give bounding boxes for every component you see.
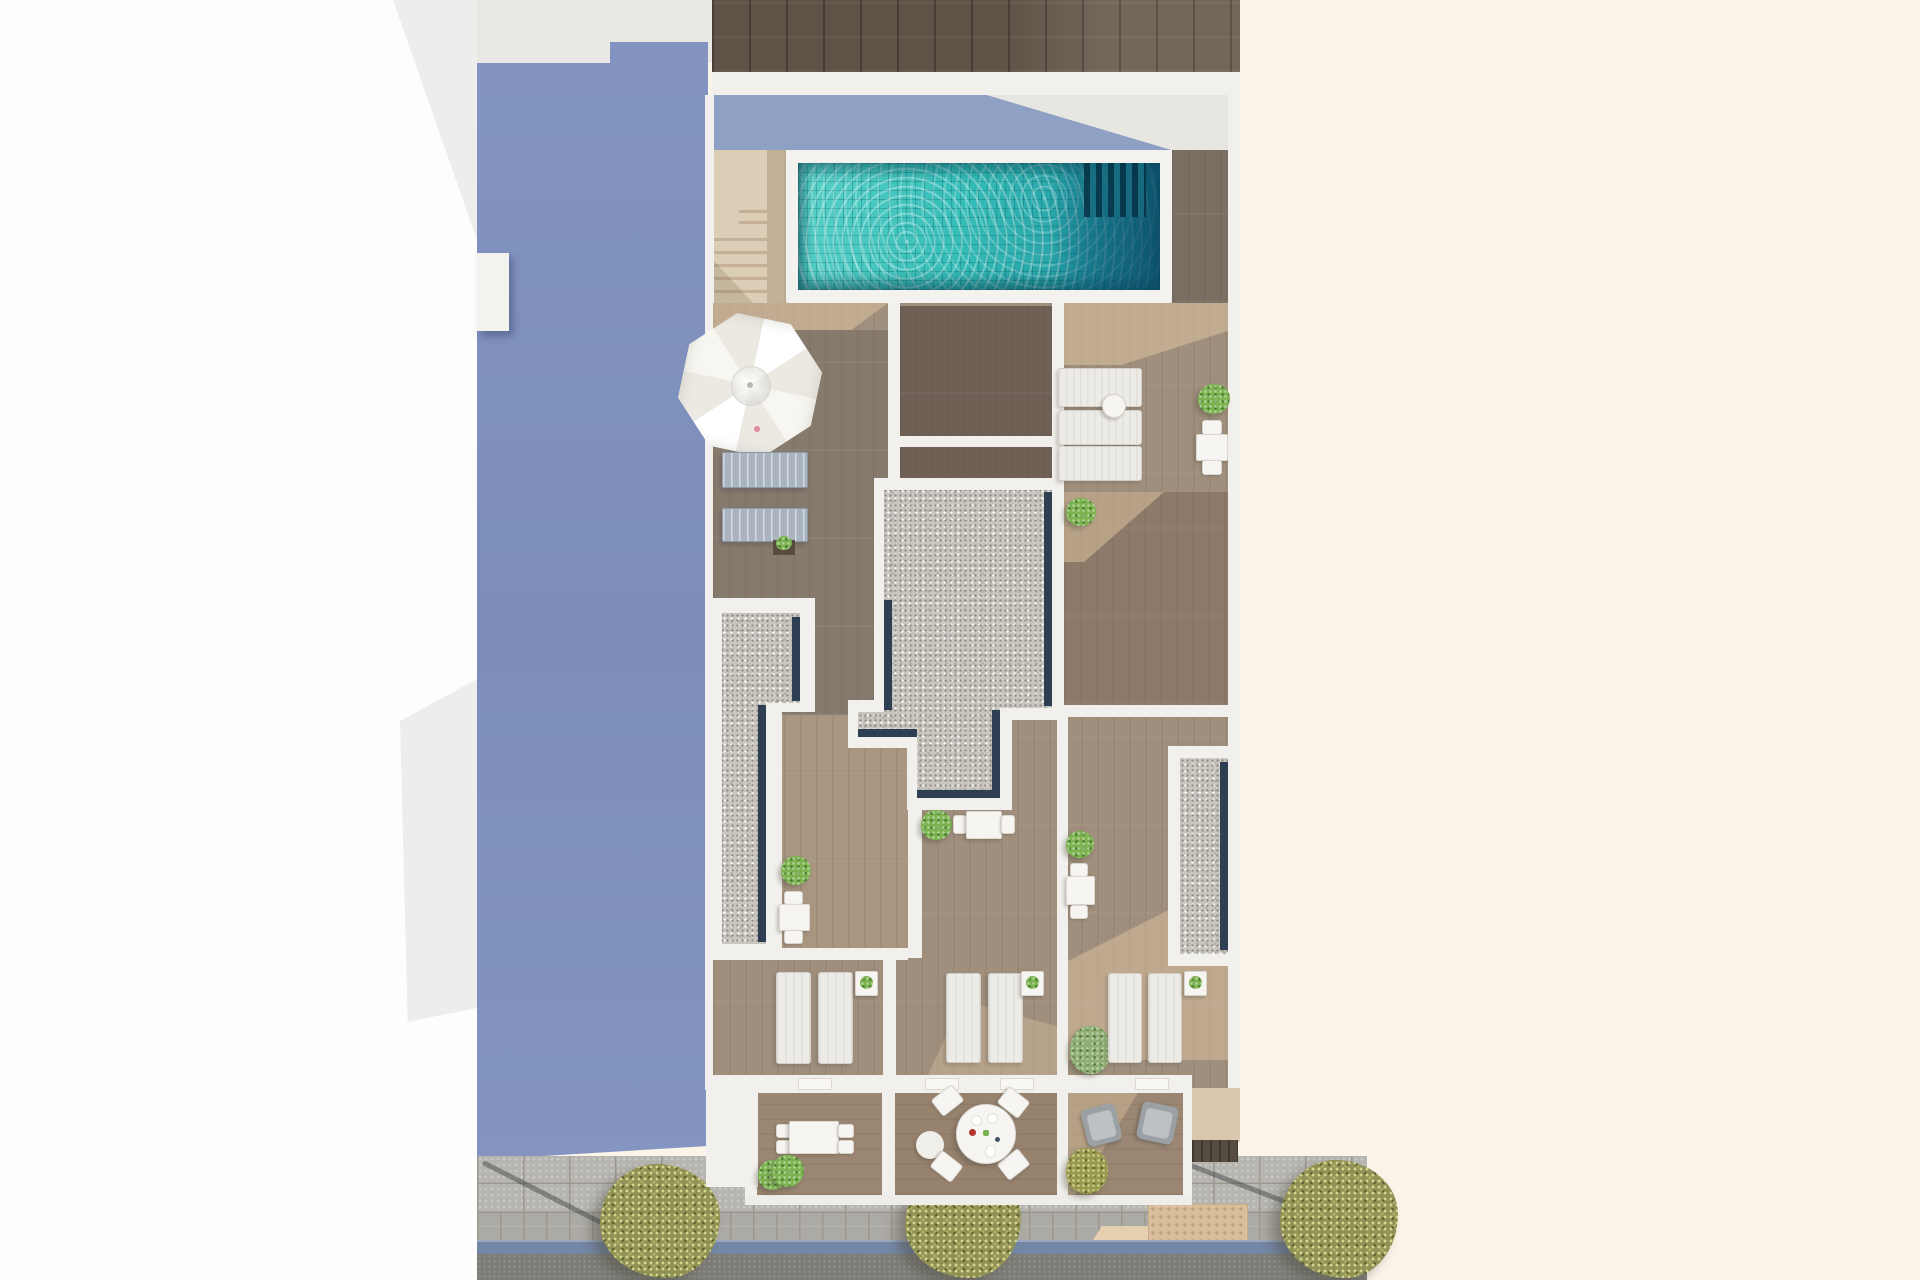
armchair-seat: [1141, 1107, 1173, 1139]
wall-vent: [1000, 1078, 1034, 1090]
leafy-bush: [1070, 1026, 1112, 1074]
plate: [971, 1115, 982, 1126]
sun-lounger-white: [946, 973, 981, 1063]
table-plant: [1189, 976, 1202, 989]
wall-horizontal-right: [1057, 705, 1240, 717]
potted-plant: [921, 810, 952, 840]
street-tree: [1280, 1160, 1398, 1278]
potted-plant: [781, 856, 811, 885]
wall-protrusion-box: [477, 253, 509, 331]
sun-lounger-white: [1148, 973, 1182, 1063]
pool-water: [798, 163, 1160, 290]
table-plant: [860, 976, 873, 989]
planter-box-dark: [1192, 1140, 1238, 1162]
olive-plant: [1066, 1148, 1108, 1194]
side-table: [1184, 971, 1207, 996]
chair: [1202, 420, 1222, 435]
neighbor-roof-dark-wood: [712, 0, 1240, 72]
chair: [953, 815, 967, 834]
chair: [838, 1124, 854, 1138]
balcony-wall-right: [1183, 1093, 1192, 1205]
top-wall-band: [712, 72, 1240, 95]
bistro-table: [1066, 876, 1095, 905]
chair: [838, 1140, 854, 1154]
dark-item: [995, 1137, 1000, 1142]
wall-lounger-divider-left: [883, 955, 896, 1090]
gravel-edge-strip: [1044, 492, 1052, 706]
armchair-seat: [1086, 1109, 1117, 1141]
sun-lounger-white: [1108, 973, 1142, 1063]
balcony-divider: [882, 1093, 895, 1205]
gravel-edge-strip: [858, 729, 917, 737]
pool-steps-ladder: [1084, 163, 1146, 217]
chair: [784, 930, 803, 944]
potted-plant: [772, 1155, 804, 1187]
side-table: [855, 971, 878, 996]
planter-small: [773, 540, 795, 555]
inner-court-dark-wood: [900, 306, 1052, 482]
background-shadow-mid-left: [400, 672, 477, 1022]
poolside-dark-deck: [1172, 150, 1228, 303]
green-dish: [983, 1130, 989, 1136]
bistro-table: [779, 904, 810, 931]
gravel-edge-strip: [992, 710, 1000, 796]
street-tree: [600, 1164, 720, 1278]
plate: [987, 1113, 998, 1124]
gravel-edge-strip: [758, 705, 766, 942]
gravel-edge-strip: [792, 617, 800, 701]
background-left-white: [0, 0, 477, 1280]
side-table: [1021, 971, 1044, 996]
bistro-table: [1196, 434, 1228, 461]
gravel-edge-strip: [1220, 762, 1228, 950]
wall-left-terrace-bottom: [706, 948, 908, 960]
chair: [1001, 815, 1015, 834]
round-side-table: [1102, 394, 1126, 418]
sun-lounger-white: [776, 972, 811, 1064]
right-side-passage: [1192, 1088, 1240, 1142]
left-corner-wall-block: [706, 1075, 758, 1187]
potted-plant: [1066, 498, 1096, 526]
sun-lounger-gray: [722, 452, 808, 488]
chair: [784, 891, 803, 905]
red-dish: [969, 1129, 976, 1136]
chair: [1202, 460, 1222, 475]
swimming-pool: [786, 150, 1172, 303]
wall-vertical-mid-upper: [908, 808, 922, 958]
flamingo-accent: [754, 426, 760, 432]
potted-plant: [1066, 831, 1094, 858]
wall-niche-top: [908, 798, 1012, 810]
round-table: [956, 1104, 1016, 1164]
court-wall-left: [888, 303, 900, 492]
balcony-divider: [1057, 1093, 1068, 1205]
bistro-table: [966, 811, 1002, 839]
armchair: [1135, 1101, 1179, 1146]
wall-vent: [798, 1078, 832, 1090]
chair: [1070, 863, 1088, 877]
sun-lounger-white: [818, 972, 853, 1064]
planter-plant: [776, 536, 792, 550]
central-gravel-roof: [848, 478, 1064, 810]
stair-corner-steps: [739, 202, 768, 232]
sun-lounger-white: [1058, 410, 1142, 445]
parasol-pole: [747, 382, 753, 388]
wall-vent: [1135, 1078, 1169, 1090]
aerial-floorplan-render: [0, 0, 1920, 1280]
table-plant: [1026, 976, 1039, 989]
pool-stairs: [713, 150, 786, 303]
gravel-edge-strip: [917, 790, 1000, 798]
gravel-edge-strip: [884, 600, 892, 710]
chair: [1070, 905, 1088, 919]
plate: [985, 1145, 996, 1158]
balcony-bottom-wall: [745, 1195, 1192, 1205]
sun-lounger-white: [1058, 446, 1142, 481]
sun-lounger-white: [988, 973, 1023, 1063]
potted-plant: [1198, 384, 1230, 414]
dining-table: [789, 1121, 839, 1154]
sun-lounger-gray: [722, 508, 808, 542]
sun-lounger-white: [1058, 368, 1142, 407]
court-divider-wall: [900, 436, 1052, 447]
building-shadow-wall: [477, 0, 708, 1162]
